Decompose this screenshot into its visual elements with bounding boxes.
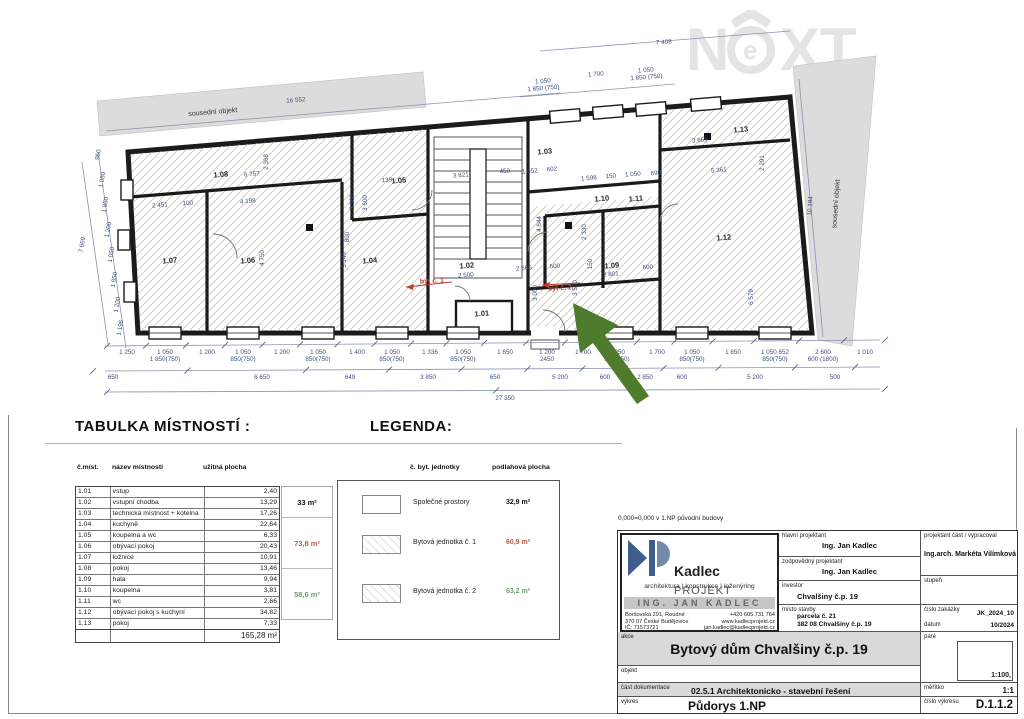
table-row: 1.08pokoj13,46 xyxy=(76,563,279,574)
plan-text: 2 600600 (1800) xyxy=(808,349,838,363)
plan-text: 6 650 xyxy=(254,374,270,381)
room-table-header-no: č.míst. xyxy=(77,464,99,471)
table-row: 1.03technická místnost + kotelna17,26 xyxy=(76,508,279,519)
plan-text: 950 xyxy=(94,148,103,160)
table-row: 1.05koupelna a wc6,33 xyxy=(76,530,279,541)
address-line: IČ: 71573721jan.kadlec@kadlecprojekt.cz xyxy=(625,625,775,632)
drawing-sheet: N e XT xyxy=(0,0,1024,719)
plan-text: 3 669 xyxy=(692,136,709,144)
plan-text: 3 300 xyxy=(349,194,356,210)
plan-text: 1 250 xyxy=(119,349,135,356)
plan-text: 2 330 xyxy=(581,224,588,240)
plan-text: 698 xyxy=(650,170,662,178)
group-area-cell: 58,6 m² xyxy=(282,568,332,619)
table-total-row: 165,28 m² xyxy=(76,629,279,642)
legend-area: 32,9 m² xyxy=(488,499,548,506)
plan-text: 450 xyxy=(499,168,511,176)
legend-item: Bytová jednotka č. 1 60,9 m² xyxy=(338,527,559,561)
title-block: Kadlec PROJEKT architektura | konstrukce… xyxy=(617,530,1018,714)
unit2-hatch-area-right xyxy=(663,100,809,331)
plan-text: 600 xyxy=(642,264,654,272)
dim-tick xyxy=(882,386,888,392)
plan-text: 1 200 xyxy=(104,221,114,238)
plan-text: 7 408 xyxy=(656,38,673,46)
plan-text: 3 850 xyxy=(420,374,436,381)
plan-text: 5 200 xyxy=(552,374,568,381)
plan-text: 2 291 xyxy=(759,155,766,171)
plan-text: 1.02 xyxy=(459,260,474,270)
plan-text: 150 xyxy=(587,258,594,269)
table-row: 1.12obývací pokoj s kuchyní34,82 xyxy=(76,607,279,618)
legend-item: Bytová jednotka č. 2 63,2 m² xyxy=(338,576,559,610)
cell-misto-stavby: místo stavby parcela č. 21 382 08 Chvalš… xyxy=(779,605,921,632)
cell-hlavni-projektant: hlavní projektant Ing. Jan Kadlec xyxy=(779,531,921,557)
legend-swatch xyxy=(362,535,401,554)
windows-bottom xyxy=(149,327,791,349)
plan-text: 1 400 xyxy=(349,349,365,356)
table-row: 1.11wc2,66 xyxy=(76,596,279,607)
plan-text: 1 0501 850 (750) xyxy=(630,66,663,83)
plan-text: 1 650 xyxy=(497,349,513,356)
room-table-header-name: název místnosti xyxy=(112,464,163,471)
table-row: 1.13pokoj7,33 xyxy=(76,618,279,629)
cell-zakazka-datum: číslo zakázky JK_2024_10 datum 10/2024 xyxy=(921,605,1017,632)
plan-text: 4 750 xyxy=(259,250,266,266)
plan-text: byt č. 2 xyxy=(548,284,573,292)
plan-text: 3 500 xyxy=(572,280,579,296)
plan-text: 600 xyxy=(549,263,561,271)
cell-cislo-vykresu: číslo výkresu D.1.1.2 xyxy=(921,697,1017,713)
plan-text: 1 050850(750) xyxy=(679,349,704,363)
plan-text: 5 361 xyxy=(711,166,728,174)
plan-text: 1 0501 850 (750) xyxy=(527,77,560,94)
plan-text: 7 669 xyxy=(78,236,88,253)
plan-text: 100 xyxy=(182,200,194,208)
elevation-note: 0,000=0,000 v 1.NP původní budovy xyxy=(618,515,723,522)
room-table: 1.01vstup2,401.02vstupní chodba13,291.03… xyxy=(75,486,280,643)
company-logo-cell: Kadlec PROJEKT architektura | konstrukce… xyxy=(620,533,779,632)
plan-text: 1 200 xyxy=(199,349,215,356)
legend-title: LEGENDA: xyxy=(370,418,452,435)
plan-text: 1 700 xyxy=(649,349,665,356)
plan-text: 649 xyxy=(345,374,356,381)
plan-text: 3 821 xyxy=(453,171,470,179)
plan-text: 3 146 xyxy=(341,252,348,268)
plan-text: 1 050850(750) xyxy=(305,349,330,363)
plan-text: 1 850 xyxy=(725,349,741,356)
plan-text: 1.04 xyxy=(362,255,378,265)
dim-tick xyxy=(90,368,96,374)
engineer-name-banner: ING. JAN KADLEC xyxy=(624,597,775,609)
plan-text: 3 000 xyxy=(532,285,539,301)
plan-text: 650 xyxy=(490,374,501,381)
plan-text: 1 050850(750) xyxy=(379,349,404,363)
table-row: 1.02vstupní chodba13,29 xyxy=(76,497,279,508)
plan-text: 3 600 xyxy=(362,195,369,211)
brand-tagline: architektura | konstrukce | inženýring xyxy=(624,583,775,590)
plan-text: 800 xyxy=(344,231,351,242)
kadlec-logo-icon xyxy=(627,539,673,579)
plan-text: 5 200 xyxy=(747,374,763,381)
plan-text: 1 598 xyxy=(581,174,598,182)
plan-text: 1 050 xyxy=(98,171,108,188)
plan-text: 1.01 xyxy=(474,308,490,318)
legend-item: Společné prostory 32,9 m² xyxy=(338,487,559,521)
cell-stupen: stupeň xyxy=(921,576,1017,605)
table-row: 1.07ložnice10,91 xyxy=(76,552,279,563)
brand-name: Kadlec PROJEKT xyxy=(674,563,777,599)
plan-text: 1 050 xyxy=(625,170,642,178)
entrance-door-opening xyxy=(531,327,559,340)
plan-text: 1 336 xyxy=(422,349,438,356)
plan-text: 1 2002450 xyxy=(539,349,555,363)
plan-text: 1.10 xyxy=(594,193,609,203)
cell-akce: akce Bytový dům Chvalšiny č.p. 19 xyxy=(618,632,921,666)
plan-text: 27 350 xyxy=(495,395,515,402)
table-row: 1.06obývací pokoj20,43 xyxy=(76,541,279,552)
plan-text: 150 xyxy=(605,173,617,181)
plan-text: 1.12 xyxy=(716,232,731,242)
pare-box: 1:100, xyxy=(957,641,1013,681)
plan-text: 10 194 xyxy=(806,196,814,216)
cell-vypracoval: projektant část / vypracoval Ing.arch. M… xyxy=(921,531,1017,576)
address-line: Boršovská 291, Roudné+420 605 731 764 xyxy=(625,612,775,619)
plan-text: 4 644 xyxy=(536,216,543,232)
company-address: Boršovská 291, Roudné+420 605 731 764370… xyxy=(625,612,775,632)
plan-text: 1.05 xyxy=(391,175,407,185)
legend-box: Společné prostory 32,9 m² Bytová jednotk… xyxy=(337,480,560,640)
section-divider xyxy=(45,443,622,444)
legend-header-col1: č. byt. jednotky xyxy=(410,464,459,471)
group-area-cell: 33 m² xyxy=(282,487,332,517)
plan-text: 602 xyxy=(546,166,558,174)
plan-text: 1.11 xyxy=(628,193,644,203)
floor-plan: 1.011.021.031.041.051.061.071.081.091.10… xyxy=(0,0,1024,455)
plan-text: 2 451 xyxy=(152,201,169,209)
dimension-ticks xyxy=(90,337,888,395)
legend-swatch xyxy=(362,495,401,514)
plan-text: 600 xyxy=(600,374,611,381)
plan-text: 600 xyxy=(677,374,688,381)
table-row: 1.04kuchyně22,64 xyxy=(76,519,279,530)
plan-text: byt č. 1 xyxy=(420,277,445,285)
plan-text: 650 xyxy=(108,374,119,381)
cell-pare: paré 1:100, xyxy=(921,632,1017,683)
cell-cast-dokumentace: část dokumentace 02.5.1 Architektonicko … xyxy=(618,683,921,697)
plan-text: 1 850 xyxy=(110,271,120,288)
legend-header-col2: podlahová plocha xyxy=(492,464,550,471)
plan-text: 1 200 xyxy=(274,349,290,356)
legend-label: Společné prostory xyxy=(413,499,469,506)
plan-text: 500 xyxy=(830,374,841,381)
plan-text: 1 0501 850(750) xyxy=(150,349,180,363)
plan-text: 2 368 xyxy=(263,154,270,170)
unit1-hatch-area xyxy=(131,129,428,331)
plan-text: 2 500 xyxy=(458,271,475,279)
plan-text: 139 xyxy=(381,177,393,185)
plan-text: 1.07 xyxy=(162,255,177,265)
legend-label: Bytová jednotka č. 1 xyxy=(413,539,476,546)
room-table-header-area: užitná plocha xyxy=(203,464,246,471)
room-table-title: TABULKA MÍSTNOSTÍ : xyxy=(75,418,250,435)
plan-text: 6 757 xyxy=(244,170,261,178)
legend-area: 63,2 m² xyxy=(488,588,548,595)
plan-text: 1 050 652850(750) xyxy=(761,349,790,363)
plan-text: 1 050850(750) xyxy=(230,349,255,363)
plan-text: 1.08 xyxy=(213,169,228,179)
project-title: Bytový dům Chvalšiny č.p. 19 xyxy=(618,641,920,657)
plan-text: 1.13 xyxy=(733,124,748,134)
neighbor-building-top xyxy=(97,72,426,136)
plan-text: 4 198 xyxy=(240,197,257,205)
table-row: 1.01vstup2,40 xyxy=(76,487,279,497)
plan-text: 1.06 xyxy=(240,255,255,265)
plan-text: 2 801 xyxy=(603,270,620,278)
cell-meritko: měřítko 1:1 xyxy=(921,683,1017,697)
plan-text: 1 050850(750) xyxy=(450,349,475,363)
plan-text: 1.03 xyxy=(537,146,552,156)
legend-area: 60,9 m² xyxy=(488,539,548,546)
plan-text: 1 010 xyxy=(857,349,873,356)
legend-label: Bytová jednotka č. 2 xyxy=(413,588,476,595)
plan-text: 2 665 xyxy=(516,264,533,272)
sheet-frame-left xyxy=(8,415,9,713)
legend-swatch xyxy=(362,584,401,603)
plan-text: 1 850 xyxy=(101,196,111,213)
cell-investor: investor Chvalšiny č.p. 19 xyxy=(779,581,921,605)
table-row: 1.09hala9,94 xyxy=(76,574,279,585)
plan-text: 1 700 xyxy=(588,70,605,78)
plan-text: 1 552 xyxy=(522,167,539,175)
plan-text: 1.09 xyxy=(604,260,619,270)
plan-text: 2 850 xyxy=(637,374,653,381)
table-row: 1.10koupelna3,81 xyxy=(76,585,279,596)
plan-text: 1 050 xyxy=(107,246,117,263)
cell-zodpovedny-projektant: zodpovědný projektant Ing. Jan Kadlec xyxy=(779,557,921,581)
dim-tick xyxy=(882,337,888,343)
room-table-group-areas: 33 m²73,8 m²58,6 m² xyxy=(281,486,333,620)
cell-objekt: objekt xyxy=(618,666,921,683)
cell-vykres: výkres Půdorys 1.NP xyxy=(618,697,921,713)
group-area-cell: 73,8 m² xyxy=(282,517,332,568)
plan-text: 6 579 xyxy=(748,289,755,305)
